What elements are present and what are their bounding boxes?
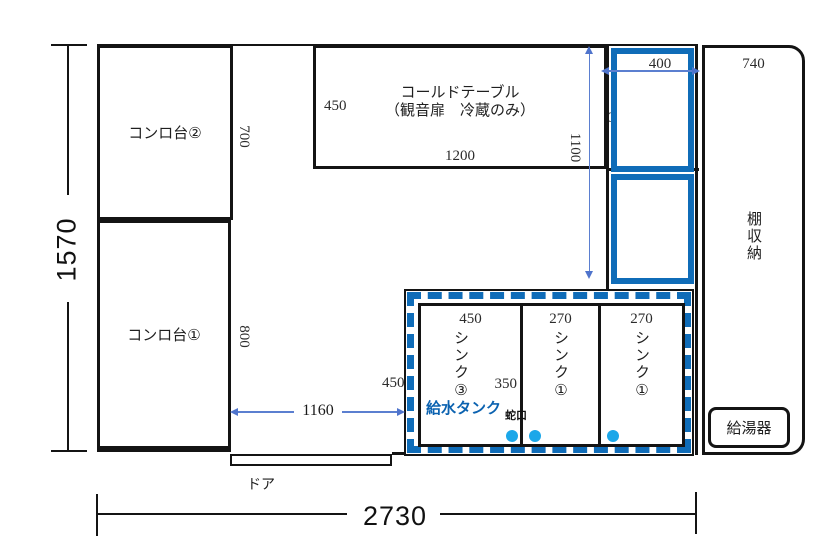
dim-2730-line-left [97,513,347,515]
sink-left-depth-label: 450 [382,375,405,392]
dim-1570-tick-bottom [51,450,87,452]
dim-2730-line-right [440,513,697,515]
dim-2730-tick-left [96,494,98,536]
sink-1b-label: シンク① [634,330,649,401]
stove-unit-1: コンロ台① [97,220,231,452]
sink-1a-width-label: 270 [549,311,572,328]
door-label: ドア [238,474,284,494]
shelf-width-label: 740 [705,56,802,73]
dim-1570-label: 1570 [32,196,102,302]
sink-inner-unit: 450 シンク③ 350 給水タンク 蛇口 270 シンク① 270 シンク① [418,303,685,447]
stove-unit-2-label: コンロ台② [128,122,201,143]
water-tank-label: 給水タンク [426,397,501,418]
sink-1a-label: シンク① [553,330,568,401]
sink-3-width-label: 450 [459,311,482,328]
shelf-unit: 740 棚収納 [702,45,805,455]
sink-compartment-3: 450 シンク③ 350 給水タンク 蛇口 [421,306,523,444]
water-heater-label: 給湯器 [726,417,771,438]
sink-3-label: シンク③ [453,330,468,401]
dim-1570-tick-top [51,44,87,46]
dim-1160-label: 1160 [294,402,342,420]
cold-table-sub-label: （観音扉 冷蔵のみ） [316,102,604,120]
dim-800-label: 800 [226,306,260,366]
sink-compartment-1a: 270 シンク① [523,306,601,444]
dim-1100-label: 1100 [556,128,594,166]
dim-2730-tick-right [695,492,697,534]
drain-tank-box-lower [611,174,694,284]
sink-area: 450 シンク③ 350 給水タンク 蛇口 270 シンク① 270 シンク① [404,289,694,456]
floor-plan: 排水タンク H250 コンロ台② 700 コンロ台① 800 450 コールドテ… [0,0,837,558]
wall-right [695,45,698,455]
dim-1570-line-upper [67,45,69,195]
sink-1b-width-label: 270 [630,311,653,328]
dim-400-arrow [601,66,700,76]
shelf-label: 棚収納 [746,211,761,262]
faucet-dot [506,430,518,442]
sink-350-label: 350 [495,376,518,393]
stove-unit-2: コンロ台② [97,45,233,220]
dim-2730-label: 2730 [345,501,445,532]
faucet-dot [607,430,619,442]
faucet-dot [529,430,541,442]
sink-compartment-1b: 270 シンク① [601,306,682,444]
door-leaf [230,454,392,466]
dim-1570-line-lower [67,302,69,452]
faucet-label: 蛇口 [505,407,527,423]
cold-table-label: コールドテーブル [316,84,604,102]
stove-unit-1-label: コンロ台① [127,324,200,345]
water-heater: 給湯器 [708,407,790,448]
dim-700-label: 700 [226,106,260,166]
